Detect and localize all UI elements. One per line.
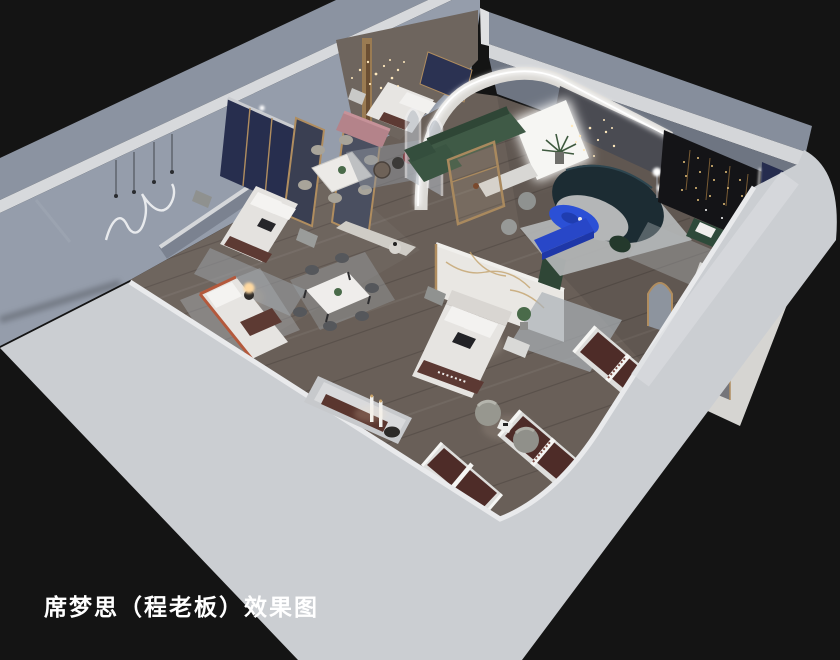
niche-stool bbox=[384, 427, 400, 438]
showroom-3d-render bbox=[0, 0, 840, 660]
back-corner-edge bbox=[480, 8, 489, 46]
booth-vase bbox=[473, 183, 479, 189]
render-canvas: 席梦思（程老板）效果图 bbox=[0, 0, 840, 660]
plant-center bbox=[517, 307, 531, 321]
round-coffee-table-2 bbox=[392, 157, 404, 169]
dining-1-plant bbox=[338, 166, 346, 174]
wall-spotlight bbox=[259, 105, 264, 110]
caption-text: 席梦思（程老板）效果图 bbox=[44, 588, 319, 622]
round-coffee-table-1 bbox=[374, 162, 390, 178]
knit-pouf-2 bbox=[501, 219, 517, 235]
floor-lamp-globe-1 bbox=[653, 168, 662, 177]
glow-sphere-lamp bbox=[244, 283, 255, 294]
dining-2-plant bbox=[334, 288, 342, 296]
knit-pouf-1 bbox=[518, 192, 536, 210]
sculpture-decor bbox=[393, 242, 397, 246]
